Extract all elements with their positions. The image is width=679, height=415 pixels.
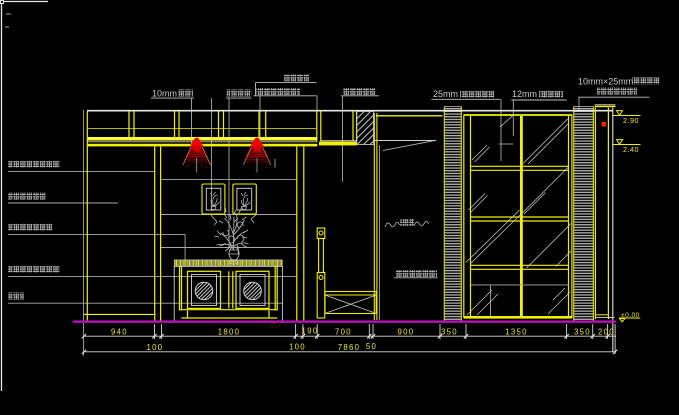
svg-text:940: 940 [111, 327, 128, 336]
svg-text:200: 200 [598, 327, 615, 336]
svg-text:±0.00: ±0.00 [621, 312, 640, 319]
svg-text:25mm: 25mm [433, 89, 458, 99]
svg-text:1800: 1800 [218, 327, 241, 336]
svg-text:2.90: 2.90 [623, 116, 639, 125]
svg-text:350: 350 [441, 327, 458, 336]
svg-text:190: 190 [302, 327, 319, 336]
svg-text:50: 50 [366, 342, 377, 351]
svg-text:7860: 7860 [338, 343, 361, 352]
svg-text:350: 350 [574, 327, 591, 336]
svg-text:1350: 1350 [505, 327, 528, 336]
svg-text:900: 900 [398, 327, 415, 336]
svg-text:10mm: 10mm [152, 89, 177, 99]
svg-text:100: 100 [289, 342, 306, 351]
svg-text:100: 100 [147, 343, 164, 352]
svg-text:12mm: 12mm [512, 89, 537, 99]
svg-text:10mm×25mm: 10mm×25mm [578, 77, 633, 87]
svg-text:700: 700 [335, 327, 352, 336]
svg-text:2.40: 2.40 [623, 145, 639, 154]
